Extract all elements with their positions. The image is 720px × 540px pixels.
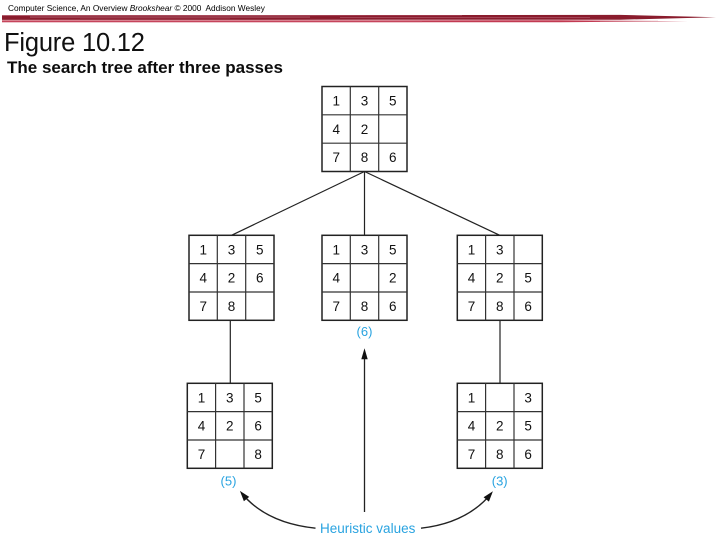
svg-text:7: 7 [199, 299, 207, 314]
svg-text:7: 7 [468, 299, 476, 314]
svg-text:3: 3 [226, 390, 234, 405]
svg-text:2: 2 [228, 271, 236, 286]
svg-text:Heuristic values: Heuristic values [320, 521, 416, 536]
svg-text:3: 3 [361, 94, 369, 109]
svg-text:7: 7 [198, 447, 206, 462]
svg-text:1: 1 [199, 242, 207, 257]
svg-text:8: 8 [228, 299, 236, 314]
svg-text:8: 8 [361, 299, 369, 314]
svg-text:7: 7 [332, 150, 340, 165]
svg-text:1: 1 [468, 390, 476, 405]
svg-text:3: 3 [228, 242, 236, 257]
svg-text:3: 3 [496, 242, 504, 257]
svg-text:6: 6 [389, 299, 397, 314]
svg-text:5: 5 [254, 390, 262, 405]
svg-text:2: 2 [496, 271, 504, 286]
svg-text:7: 7 [332, 299, 340, 314]
svg-text:2: 2 [361, 122, 369, 137]
svg-text:(3): (3) [492, 474, 508, 489]
svg-text:8: 8 [496, 447, 504, 462]
svg-text:4: 4 [199, 271, 207, 286]
svg-text:6: 6 [254, 419, 262, 434]
svg-text:6: 6 [524, 447, 532, 462]
svg-text:8: 8 [496, 299, 504, 314]
svg-text:1: 1 [468, 242, 476, 257]
svg-text:1: 1 [332, 94, 340, 109]
svg-text:5: 5 [389, 242, 397, 257]
svg-text:4: 4 [468, 419, 476, 434]
svg-text:3: 3 [524, 390, 532, 405]
svg-text:1: 1 [198, 390, 206, 405]
svg-text:4: 4 [468, 271, 476, 286]
svg-text:6: 6 [389, 150, 397, 165]
svg-text:8: 8 [254, 447, 262, 462]
svg-text:5: 5 [524, 271, 532, 286]
svg-text:6: 6 [256, 271, 264, 286]
svg-text:5: 5 [256, 242, 264, 257]
svg-text:6: 6 [524, 299, 532, 314]
svg-text:(6): (6) [357, 324, 373, 339]
svg-text:7: 7 [468, 447, 476, 462]
svg-text:(5): (5) [221, 474, 237, 489]
svg-text:4: 4 [332, 122, 340, 137]
svg-text:5: 5 [389, 94, 397, 109]
svg-text:1: 1 [332, 242, 340, 257]
svg-text:2: 2 [226, 419, 234, 434]
svg-text:3: 3 [361, 242, 369, 257]
svg-text:4: 4 [332, 271, 340, 286]
svg-text:4: 4 [198, 419, 206, 434]
svg-text:2: 2 [389, 271, 397, 286]
svg-text:5: 5 [524, 419, 532, 434]
svg-text:8: 8 [361, 150, 369, 165]
svg-text:2: 2 [496, 419, 504, 434]
